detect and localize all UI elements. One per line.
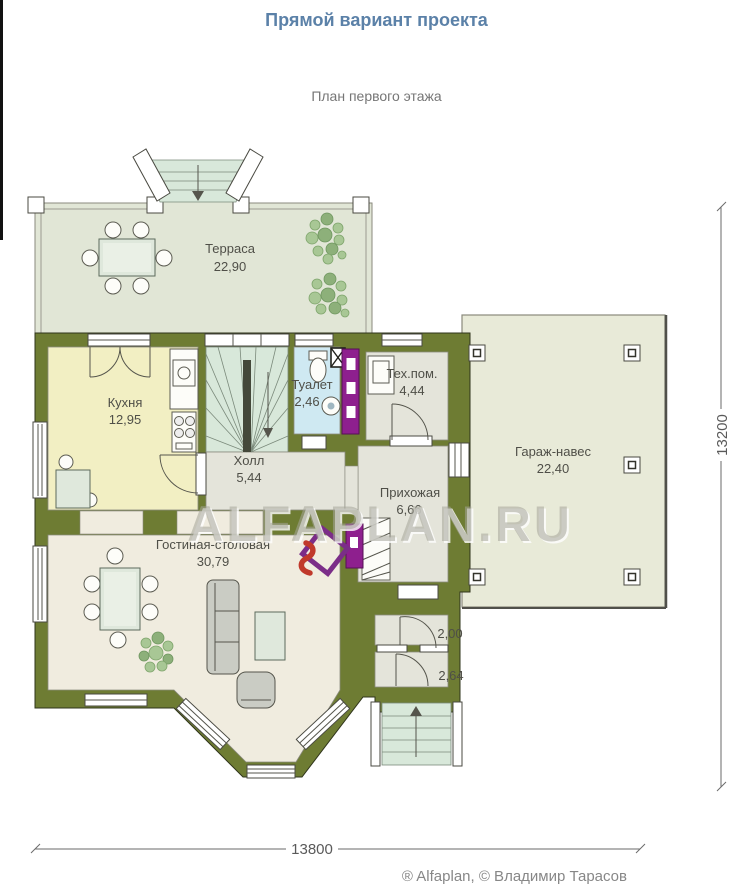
dimension-bottom: 13800: [31, 841, 645, 858]
hall-label: Холл: [234, 453, 265, 468]
garage-area: 22,40: [537, 461, 570, 476]
kitchen-door-opening: [196, 453, 206, 495]
column: [624, 345, 640, 361]
terrace-area: 22,90: [214, 259, 247, 274]
tech-window: [382, 334, 422, 346]
column: [624, 457, 640, 473]
living-area: 30,79: [197, 554, 230, 569]
kitchen-area: 12,95: [109, 412, 142, 427]
page: Прямой вариант проекта План первого этаж…: [0, 0, 753, 895]
kitchen-living-opening: [80, 511, 143, 534]
bay-window-bottom: [247, 765, 295, 778]
kitchen-table: [56, 470, 90, 508]
column: [624, 569, 640, 585]
step-side-wall: [371, 702, 380, 766]
terrace-room: Терраса 22,90: [28, 197, 372, 333]
tech-door-opening: [390, 436, 432, 446]
dimension-right: 13200: [714, 202, 731, 791]
height-dimension: 13200: [714, 414, 731, 456]
entry-hall-window-right: [449, 443, 469, 477]
toilet-area: 2,46: [294, 394, 319, 409]
toilet-door: [302, 436, 326, 449]
sofa: [207, 580, 239, 674]
watermark: ALFAPLAN.RU ALFAPLAN.RU: [187, 496, 575, 554]
tambour-area: 2,00: [437, 626, 462, 641]
kitchen-sink: [173, 360, 195, 386]
porch-area: 2,64: [438, 668, 463, 683]
living-window-left: [33, 546, 47, 622]
tech-area: 4,44: [399, 383, 424, 398]
watermark-text: ALFAPLAN.RU: [187, 496, 573, 552]
porch-floor: [375, 652, 448, 687]
width-dimension: 13800: [291, 841, 333, 858]
tech-label: Тех.пом.: [386, 366, 437, 381]
terrace-post: [353, 197, 369, 213]
stair-core-wall: [243, 360, 251, 452]
column: [469, 345, 485, 361]
floor-plan: Терраса 22,90: [0, 0, 753, 895]
stair-window: [205, 334, 289, 346]
garage-label: Гараж-навес: [515, 444, 591, 459]
toilet-window: [295, 334, 333, 346]
entry-steps-bottom: [371, 702, 462, 766]
terrace-post: [28, 197, 44, 213]
armchair: [237, 672, 275, 708]
step-side-wall: [453, 702, 462, 766]
hall-area: 5,44: [236, 470, 261, 485]
living-window-bottom-left: [85, 694, 147, 706]
terrace-label: Терраса: [205, 241, 256, 256]
copyright: ® Alfaplan, © Владимир Тарасов: [0, 868, 627, 885]
column: [469, 569, 485, 585]
entry-steps-top: [133, 149, 263, 202]
kitchen-label: Кухня: [108, 395, 143, 410]
stove: [172, 412, 196, 452]
kitchen-window-left: [33, 422, 47, 498]
coffee-table: [255, 612, 285, 660]
toilet-label: Туалет: [291, 377, 332, 392]
